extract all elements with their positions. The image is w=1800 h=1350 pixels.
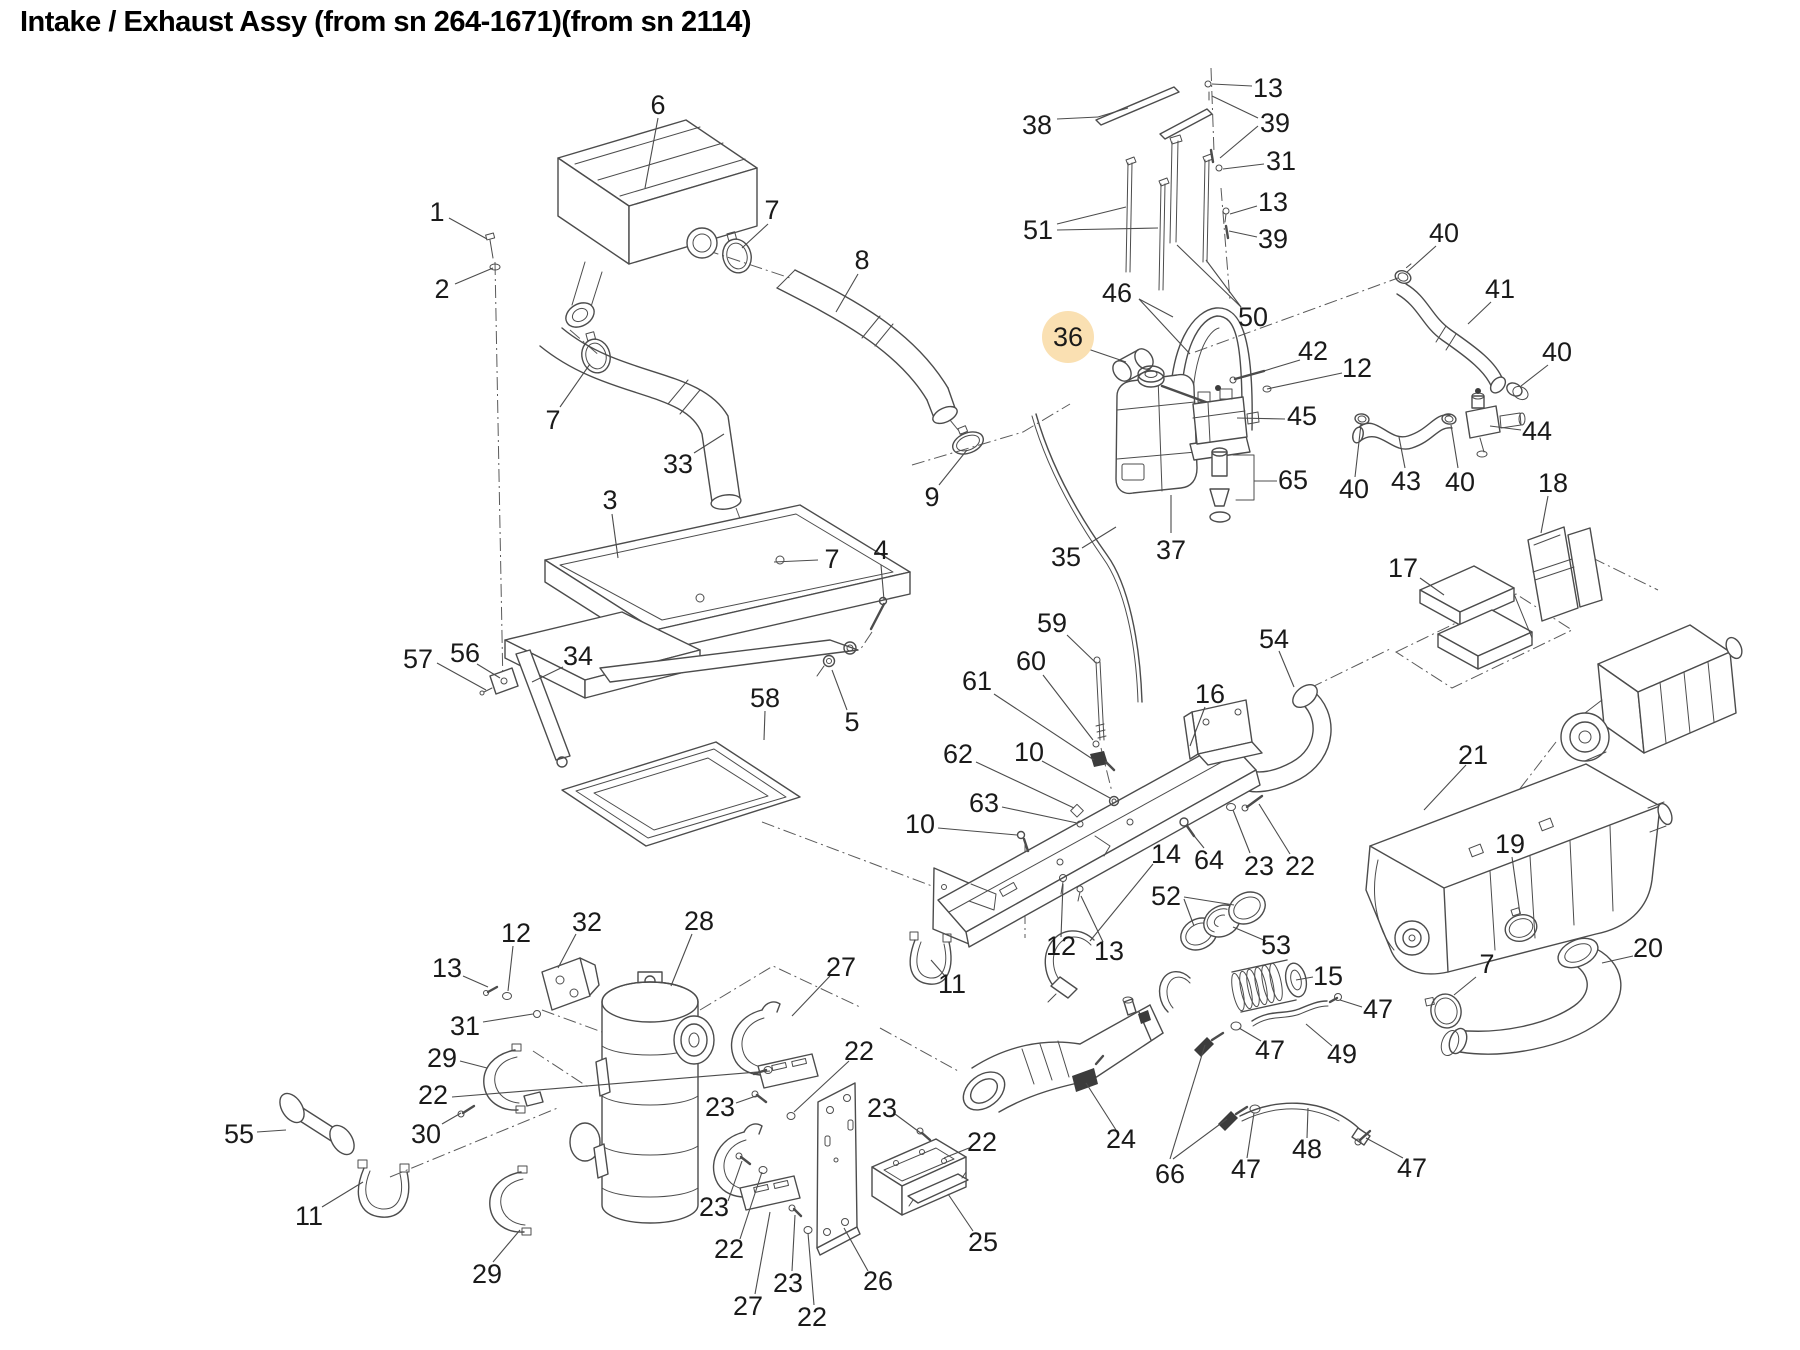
callout-36[interactable]: 36 — [1053, 322, 1083, 352]
leader-line — [1223, 164, 1264, 169]
clamp-29-glyph-upper — [458, 1044, 543, 1117]
callout-31[interactable]: 31 — [1266, 146, 1296, 176]
callout-47[interactable]: 47 — [1231, 1154, 1261, 1184]
leader-line — [736, 1096, 756, 1103]
leader-line — [694, 434, 724, 453]
fitting-60-glyph — [1093, 741, 1099, 747]
leader-line — [493, 1230, 520, 1262]
callout-5[interactable]: 5 — [844, 707, 859, 737]
leader-line — [1279, 651, 1294, 687]
callout-4[interactable]: 4 — [873, 535, 888, 565]
callout-48[interactable]: 48 — [1292, 1134, 1322, 1164]
callout-56[interactable]: 56 — [450, 638, 480, 668]
leader-line — [1541, 496, 1548, 533]
callout-38[interactable]: 38 — [1022, 110, 1052, 140]
leader-line — [257, 1130, 286, 1132]
breather-65-drawing — [1210, 448, 1254, 522]
callout-24[interactable]: 24 — [1106, 1124, 1136, 1154]
leader-line — [1177, 245, 1241, 307]
callout-27[interactable]: 27 — [733, 1291, 763, 1321]
leader-line — [808, 1233, 814, 1305]
callout-44[interactable]: 44 — [1522, 416, 1552, 446]
leader-line — [1468, 302, 1491, 324]
leader-line — [322, 1182, 363, 1207]
callout-57[interactable]: 57 — [403, 644, 433, 674]
callout-13[interactable]: 13 — [1258, 187, 1288, 217]
leader-line — [455, 268, 493, 284]
callout-12[interactable]: 12 — [1342, 353, 1372, 383]
leader-line — [1002, 807, 1077, 823]
clamp-29-glyph-lower — [490, 1166, 531, 1235]
callout-30[interactable]: 30 — [411, 1119, 441, 1149]
leader-line — [1057, 228, 1158, 230]
callout-17[interactable]: 17 — [1388, 553, 1418, 583]
callout-60[interactable]: 60 — [1016, 646, 1046, 676]
callout-45[interactable]: 45 — [1287, 401, 1317, 431]
callout-22[interactable]: 22 — [418, 1080, 448, 1110]
leader-line — [477, 664, 500, 678]
callout-40[interactable]: 40 — [1445, 467, 1475, 497]
leader-line — [1212, 84, 1252, 86]
leader-line — [1139, 299, 1173, 317]
leader-line — [1206, 260, 1241, 307]
callout-14[interactable]: 14 — [1151, 839, 1181, 869]
plate-26-drawing — [817, 1083, 860, 1255]
leader-line — [1451, 425, 1458, 468]
leader-line — [764, 711, 765, 740]
callout-63[interactable]: 63 — [969, 788, 999, 818]
leader-line — [560, 364, 590, 407]
callout-10[interactable]: 10 — [1014, 737, 1044, 767]
callout-35[interactable]: 35 — [1051, 542, 1081, 572]
leader-line — [1057, 117, 1098, 119]
leader-line — [1230, 206, 1257, 214]
leader-line — [1424, 765, 1466, 810]
callout-7[interactable]: 7 — [824, 544, 839, 574]
leader-line — [1220, 126, 1258, 158]
muffler-21-drawing — [1366, 764, 1675, 974]
callout-47[interactable]: 47 — [1255, 1035, 1285, 1065]
callout-40[interactable]: 40 — [1542, 337, 1572, 367]
canister-28-drawing — [570, 972, 714, 1223]
callout-29[interactable]: 29 — [427, 1043, 457, 1073]
callout-64[interactable]: 64 — [1194, 845, 1224, 875]
panel-17-drawing — [1420, 566, 1532, 669]
callout-7[interactable]: 7 — [545, 405, 560, 435]
leader-line — [1057, 207, 1126, 224]
leader-line — [895, 1114, 922, 1134]
callout-51[interactable]: 51 — [1023, 215, 1053, 245]
callout-32[interactable]: 32 — [572, 907, 602, 937]
callout-34[interactable]: 34 — [563, 641, 593, 671]
callout-55[interactable]: 55 — [224, 1119, 254, 1149]
callout-31[interactable]: 31 — [450, 1011, 480, 1041]
callout-39[interactable]: 39 — [1260, 108, 1290, 138]
callout-11[interactable]: 11 — [295, 1201, 323, 1231]
callout-61[interactable]: 61 — [962, 666, 992, 696]
diagram-canvas: 6127873335756345854793813393113395146503… — [0, 0, 1800, 1350]
callout-6[interactable]: 6 — [650, 90, 665, 120]
screw-42-glyph — [1230, 371, 1271, 392]
callout-29[interactable]: 29 — [472, 1259, 502, 1289]
leader-line — [755, 1212, 770, 1294]
callout-54[interactable]: 54 — [1259, 624, 1289, 654]
callout-2[interactable]: 2 — [434, 274, 449, 304]
bracket-32-drawing — [484, 958, 600, 1018]
leader-line — [1399, 437, 1405, 468]
callout-3[interactable]: 3 — [602, 485, 617, 515]
callout-20[interactable]: 20 — [1633, 933, 1663, 963]
callout-65[interactable]: 65 — [1278, 465, 1308, 495]
callout-41[interactable]: 41 — [1485, 274, 1515, 304]
callout-39[interactable]: 39 — [1258, 224, 1288, 254]
leader-line — [1229, 231, 1257, 237]
callout-23[interactable]: 23 — [699, 1192, 729, 1222]
callout-23[interactable]: 23 — [1244, 851, 1274, 881]
leader-line — [938, 828, 1017, 835]
callout-42[interactable]: 42 — [1298, 336, 1328, 366]
callout-40[interactable]: 40 — [1429, 218, 1459, 248]
leader-line — [792, 1215, 795, 1271]
box-25-drawing — [872, 1139, 968, 1215]
callout-53[interactable]: 53 — [1261, 930, 1291, 960]
callout-11[interactable]: 11 — [938, 969, 966, 999]
callout-8[interactable]: 8 — [854, 245, 869, 275]
callout-22[interactable]: 22 — [967, 1127, 997, 1157]
leader-line — [948, 1194, 973, 1231]
cooler-assembly-drawing — [486, 120, 757, 332]
leader-line — [1170, 1045, 1205, 1159]
air-cleaner-drawing — [1561, 625, 1745, 761]
callout-21[interactable]: 21 — [1458, 740, 1488, 770]
leader-line — [832, 670, 847, 710]
leader-line — [1267, 373, 1342, 389]
callout-12[interactable]: 12 — [1046, 931, 1076, 961]
callout-18[interactable]: 18 — [1538, 468, 1568, 498]
callout-47[interactable]: 47 — [1397, 1153, 1427, 1183]
callout-1[interactable]: 1 — [429, 197, 444, 227]
hose-8-drawing — [777, 270, 960, 427]
callout-28[interactable]: 28 — [684, 906, 714, 936]
leader-line — [1173, 1119, 1227, 1159]
callout-58[interactable]: 58 — [750, 683, 780, 713]
panel-18-drawing — [1528, 527, 1602, 621]
callout-23[interactable]: 23 — [867, 1093, 897, 1123]
callout-23[interactable]: 23 — [773, 1268, 803, 1298]
leader-line — [1521, 365, 1548, 386]
leader-line — [671, 934, 692, 986]
clamp-7-glyph-elbow20 — [1425, 991, 1464, 1031]
leader-line — [1233, 810, 1250, 853]
callout-50[interactable]: 50 — [1238, 302, 1268, 332]
gaskets-52-53-glyphs — [1175, 886, 1271, 956]
callout-15[interactable]: 15 — [1313, 961, 1343, 991]
leader-line — [1090, 864, 1153, 941]
callout-12[interactable]: 12 — [501, 918, 531, 948]
callout-49[interactable]: 49 — [1327, 1039, 1357, 1069]
valve-44-drawing — [1466, 388, 1525, 457]
callout-47[interactable]: 47 — [1363, 994, 1393, 1024]
leader-line — [1184, 897, 1234, 905]
callout-52[interactable]: 52 — [1151, 881, 1181, 911]
callout-37[interactable]: 37 — [1156, 535, 1186, 565]
clamp-9-glyph — [947, 421, 987, 458]
callout-13[interactable]: 13 — [1094, 936, 1124, 966]
cover-38-drawing — [1096, 87, 1212, 139]
rod-59-drawing — [1090, 657, 1114, 770]
leader-line — [1139, 299, 1190, 354]
callout-22[interactable]: 22 — [714, 1234, 744, 1264]
callout-23[interactable]: 23 — [705, 1092, 735, 1122]
leader-line — [460, 1061, 487, 1068]
leader-line — [449, 218, 487, 239]
leader-line — [1340, 1000, 1362, 1007]
callout-13[interactable]: 13 — [432, 953, 462, 983]
leader-line — [1454, 977, 1476, 995]
leader-line — [483, 1014, 533, 1022]
callout-7[interactable]: 7 — [1479, 949, 1494, 979]
parts-diagram-page: Intake / Exhaust Assy (from sn 264-1671)… — [0, 0, 1800, 1350]
leader-line — [1043, 675, 1093, 740]
clamp-11-glyph-left — [358, 1160, 409, 1217]
leader-line — [1086, 1083, 1116, 1130]
callout-25[interactable]: 25 — [968, 1227, 998, 1257]
leader-line — [728, 1161, 742, 1201]
leader-line — [1247, 1113, 1254, 1158]
callout-66[interactable]: 66 — [1155, 1159, 1185, 1189]
callout-40[interactable]: 40 — [1339, 474, 1369, 504]
leader-line — [1244, 360, 1300, 377]
leader-line — [508, 946, 513, 991]
leader-line — [1042, 761, 1110, 798]
leader-line — [1259, 804, 1290, 854]
screws-13-39-31-glyphs — [1205, 81, 1229, 238]
callout-22[interactable]: 22 — [1285, 851, 1315, 881]
callout-22[interactable]: 22 — [797, 1302, 827, 1332]
pipe-55-drawing — [275, 1089, 359, 1159]
callout-9[interactable]: 9 — [924, 482, 939, 512]
elbow-hose-33-drawing — [540, 328, 742, 511]
gasket-58-drawing — [562, 742, 800, 846]
leader-line — [792, 976, 830, 1016]
callout-22[interactable]: 22 — [844, 1036, 874, 1066]
callout-19[interactable]: 19 — [1495, 829, 1525, 859]
callout-16[interactable]: 16 — [1195, 679, 1225, 709]
leader-line — [1212, 96, 1258, 118]
callout-43[interactable]: 43 — [1391, 466, 1421, 496]
callout-10[interactable]: 10 — [905, 809, 935, 839]
callout-62[interactable]: 62 — [943, 739, 973, 769]
clamp-27-glyph-upper — [732, 1002, 818, 1088]
flex-hose-15-drawing — [1229, 960, 1309, 1012]
leader-line — [1407, 246, 1436, 272]
callout-13[interactable]: 13 — [1253, 73, 1283, 103]
leader-line — [1067, 635, 1095, 662]
callout-59[interactable]: 59 — [1037, 608, 1067, 638]
callout-46[interactable]: 46 — [1102, 278, 1132, 308]
callout-26[interactable]: 26 — [863, 1266, 893, 1296]
callout-27[interactable]: 27 — [826, 952, 856, 982]
leader-line — [1082, 527, 1116, 548]
callout-7[interactable]: 7 — [764, 195, 779, 225]
bracket-56-57-glyph — [480, 668, 518, 695]
callout-33[interactable]: 33 — [663, 449, 693, 479]
leader-line — [463, 976, 488, 987]
leader-line — [442, 1113, 461, 1124]
